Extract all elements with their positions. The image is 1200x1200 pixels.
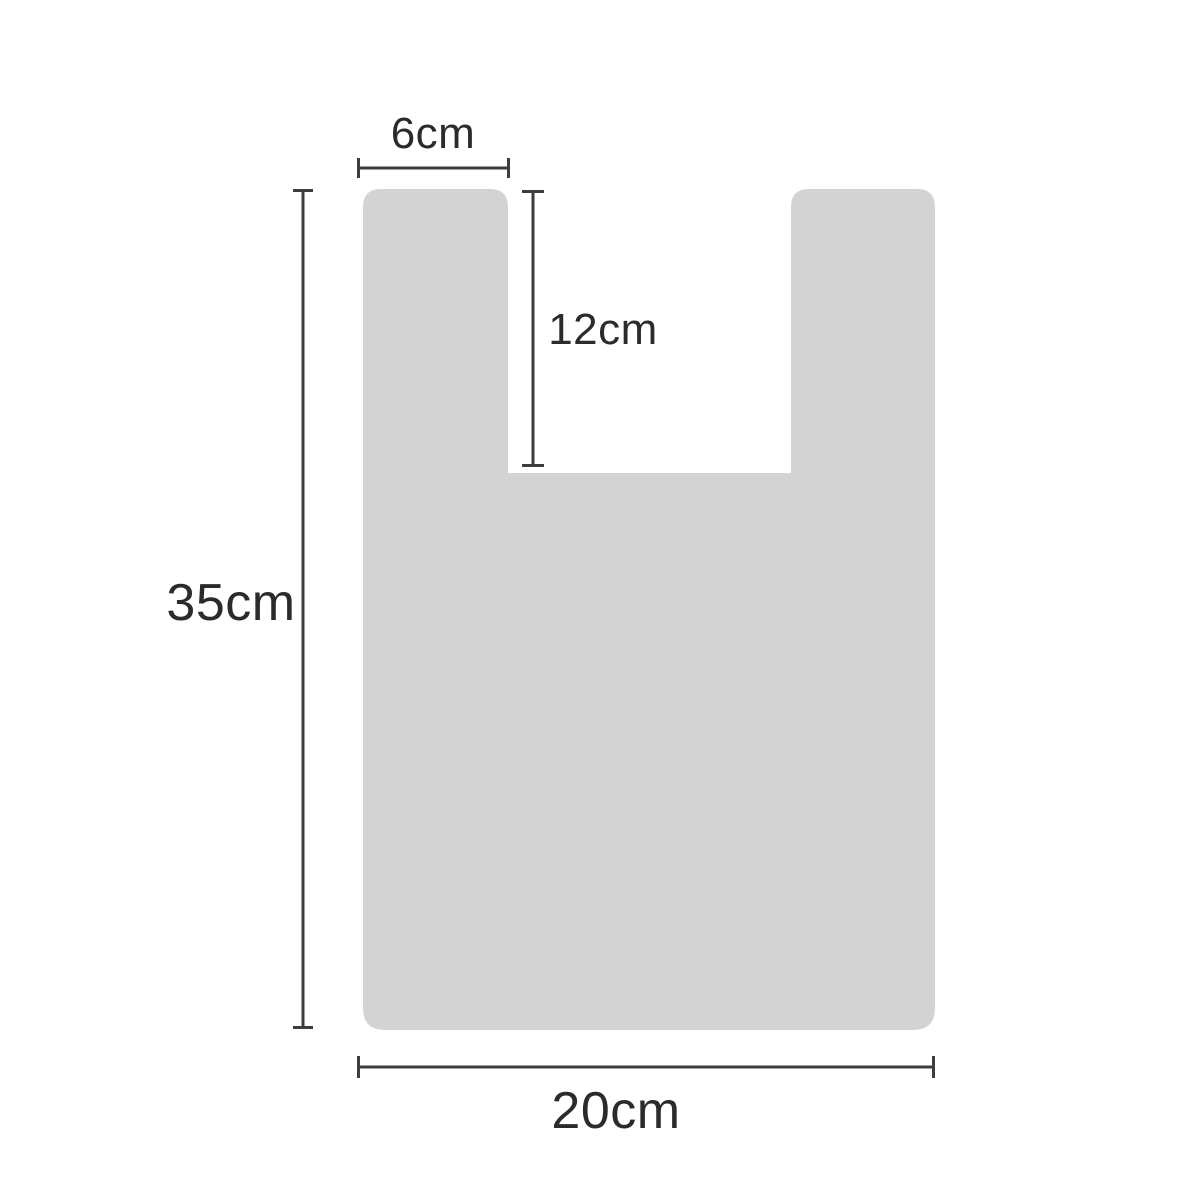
- dimension-label-bag-height: 35cm: [166, 577, 295, 629]
- dimension-line-notch-depth: [522, 191, 544, 466]
- dimension-line-bag-height: [293, 190, 313, 1028]
- dimension-line-handle-width: [358, 158, 509, 178]
- dimension-line-bag-width: [358, 1056, 934, 1078]
- dimension-label-notch-depth: 12cm: [548, 308, 658, 352]
- diagram-canvas: 6cm 12cm 35cm 20cm: [0, 0, 1200, 1200]
- dimension-label-handle-width: 6cm: [391, 112, 476, 156]
- dimension-label-bag-width: 20cm: [551, 1085, 680, 1137]
